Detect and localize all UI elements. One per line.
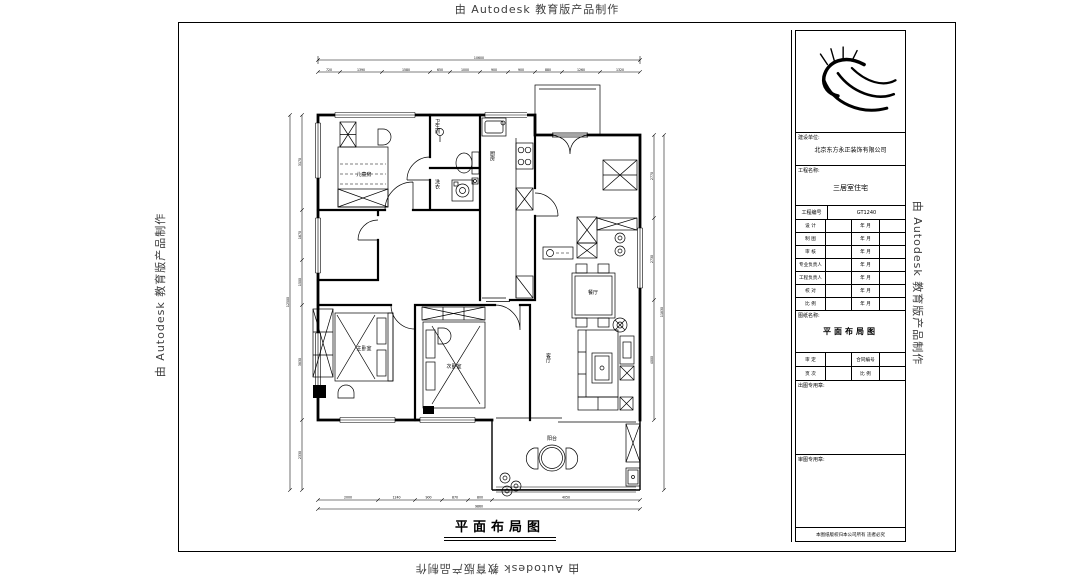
page-label: 页 次 — [796, 367, 826, 380]
label-laundry: 洗衣 — [434, 178, 440, 190]
dimension-labels: 10600 720 1390 1580 650 1000 900 900 880… — [286, 56, 664, 509]
furniture-master — [313, 309, 393, 398]
table-row: 制 图 年 月 — [796, 233, 905, 246]
drawing-name-label: 图纸名称: — [798, 312, 903, 319]
label-bathroom: 卫生间 — [434, 119, 440, 135]
furniture-bedroom2 — [422, 307, 485, 414]
project-number-value: GT1240 — [828, 206, 905, 219]
row-label: 审 核 — [796, 246, 826, 258]
logo-swoosh-icon — [803, 38, 899, 126]
furniture-balcony — [500, 424, 640, 496]
dim-value: 12500 — [286, 297, 290, 307]
doors — [358, 135, 588, 330]
dim-value: 900 — [491, 68, 497, 72]
table-row: 校 对 年 月 — [796, 285, 905, 298]
titleblock: 建设单位: 北京东方永正装饰有限公司 工程名称: 三居室住宅 工程编号 GT12… — [795, 30, 906, 542]
titleblock-footer: 本图纸版权归本公司所有 违者必究 — [796, 528, 905, 541]
plan-title: 平面布局图 — [444, 516, 556, 541]
dim-value: 870 — [452, 496, 458, 500]
dim-value: 11830 — [660, 307, 664, 317]
floor-plan: 儿童房 卫生间 洗衣 厨房 餐厅 客厅 主卧室 次卧室 阳台 10600 720… — [280, 48, 670, 518]
dim-value: 650 — [437, 68, 443, 72]
stamp-section-1: 出图专用章: — [796, 381, 905, 455]
furniture-entry — [603, 160, 637, 190]
client-value: 北京东方永正装饰有限公司 — [798, 145, 903, 154]
dim-value: 1390 — [357, 68, 365, 72]
label-kitchen: 厨房 — [489, 151, 495, 162]
drawing-name-section: 图纸名称: 平面布局图 — [796, 311, 905, 353]
watermark-left: 由 Autodesk 教育版产品制作 — [152, 213, 168, 377]
watermark-top: 由 Autodesk 教育版产品制作 — [455, 1, 619, 17]
scale-label: 比 例 — [852, 367, 880, 380]
interior-walls — [318, 115, 535, 420]
row-value: 年 月 — [852, 220, 880, 232]
row-label: 校 对 — [796, 285, 826, 297]
dim-value: 9860 — [475, 505, 483, 509]
dim-value: 1580 — [402, 68, 410, 72]
furniture-dining — [543, 217, 637, 327]
dim-value: 2770 — [650, 172, 654, 180]
label-balcony: 阳台 — [547, 435, 557, 442]
furniture-laundry — [452, 180, 473, 201]
dim-value: 2000 — [344, 496, 352, 500]
approval-label: 审 定 — [796, 353, 826, 366]
dim-value: 900 — [518, 68, 524, 72]
furniture-living — [578, 318, 634, 410]
row-value: 年 月 — [852, 233, 880, 245]
furniture-bedroom1 — [338, 122, 391, 207]
entry-vestibule — [535, 85, 600, 135]
row-label: 制 图 — [796, 233, 826, 245]
row-value: 年 月 — [852, 298, 880, 310]
furniture-bathroom — [437, 129, 480, 185]
furniture-kitchen — [482, 118, 533, 298]
titleblock-double-line — [791, 30, 792, 542]
project-number-row: 工程编号 GT1240 — [796, 206, 905, 220]
row-value: 年 月 — [852, 259, 880, 271]
row-label: 工程负责人 — [796, 272, 826, 284]
page-row: 页 次 比 例 — [796, 367, 905, 381]
project-value: 三居室住宅 — [798, 183, 903, 193]
dim-value: 1670 — [298, 231, 302, 239]
contract-label: 合同编号 — [852, 353, 880, 366]
client-label: 建设单位: — [798, 134, 903, 141]
dim-value: 720 — [326, 68, 332, 72]
dim-value: 900 — [425, 496, 431, 500]
client-section: 建设单位: 北京东方永正装饰有限公司 — [796, 133, 905, 166]
company-logo — [796, 31, 905, 133]
project-section: 工程名称: 三居室住宅 — [796, 166, 905, 206]
dim-value: 1000 — [461, 68, 469, 72]
dim-value: 1240 — [392, 496, 400, 500]
dim-value: 3830 — [298, 358, 302, 366]
dim-value: 2330 — [298, 451, 302, 459]
dim-value: 1500 — [298, 278, 302, 286]
label-bedroom1: 儿童房 — [356, 171, 371, 178]
dim-value: 4000 — [650, 356, 654, 364]
stamp1-label: 出图专用章: — [798, 382, 903, 389]
table-row: 审 核 年 月 — [796, 246, 905, 259]
project-label: 工程名称: — [798, 167, 903, 174]
dim-value: 880 — [545, 68, 551, 72]
dim-value: 1260 — [577, 68, 585, 72]
table-row: 设 计 年 月 — [796, 220, 905, 233]
label-bedroom2: 次卧室 — [446, 363, 461, 370]
row-label: 设 计 — [796, 220, 826, 232]
approval-row: 审 定 合同编号 — [796, 353, 905, 367]
project-number-label: 工程编号 — [796, 206, 828, 219]
row-value: 年 月 — [852, 285, 880, 297]
table-row: 工程负责人 年 月 — [796, 272, 905, 285]
stamp-section-2: 审图专用章: — [796, 455, 905, 529]
dimension-lines — [288, 56, 666, 511]
dim-value: 4050 — [562, 496, 570, 500]
drawing-name-value: 平面布局图 — [798, 326, 903, 337]
table-row: 专业负责人 年 月 — [796, 259, 905, 272]
row-label: 专业负责人 — [796, 259, 826, 271]
table-row: 比 例 年 月 — [796, 298, 905, 311]
dim-value: 2730 — [650, 255, 654, 263]
stamp2-label: 审图专用章: — [798, 456, 903, 463]
watermark-bottom: 由 Autodesk 教育版产品制作 — [415, 561, 579, 577]
dim-value: 3170 — [298, 158, 302, 166]
label-living: 客厅 — [545, 352, 551, 363]
row-value: 年 月 — [852, 272, 880, 284]
label-master: 主卧室 — [356, 345, 371, 352]
row-label: 比 例 — [796, 298, 826, 310]
dim-value: 10600 — [474, 56, 484, 60]
dim-value: 800 — [477, 496, 483, 500]
dim-value: 1320 — [616, 68, 624, 72]
row-value: 年 月 — [852, 246, 880, 258]
label-dining: 餐厅 — [588, 289, 598, 296]
